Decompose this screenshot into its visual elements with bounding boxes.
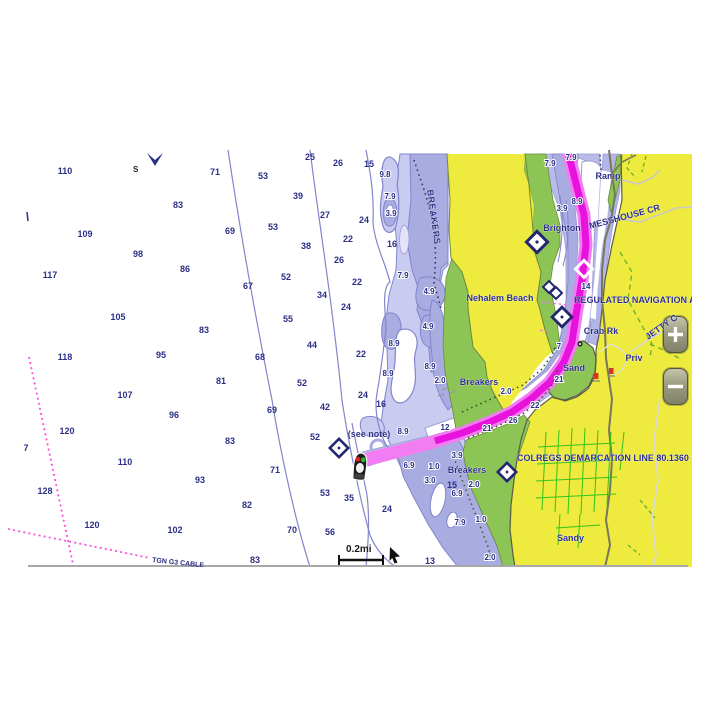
svg-text:8.9: 8.9 — [388, 339, 400, 348]
svg-text:86: 86 — [180, 264, 190, 274]
svg-text:24: 24 — [341, 302, 351, 312]
svg-text:7.9: 7.9 — [397, 271, 409, 280]
svg-text:26: 26 — [509, 416, 518, 425]
svg-text:83: 83 — [225, 436, 235, 446]
svg-text:7: 7 — [23, 443, 28, 453]
svg-text:24: 24 — [382, 504, 392, 514]
svg-text:Sand: Sand — [563, 363, 585, 373]
svg-text:38: 38 — [301, 241, 311, 251]
svg-text:7.9: 7.9 — [544, 159, 556, 168]
svg-text:83: 83 — [250, 555, 260, 565]
svg-text:96: 96 — [169, 410, 179, 420]
svg-text:8.9: 8.9 — [397, 427, 409, 436]
svg-text:Ramp: Ramp — [595, 171, 621, 181]
svg-text:52: 52 — [297, 378, 307, 388]
svg-text:12: 12 — [441, 423, 450, 432]
svg-text:Breakers: Breakers — [460, 377, 499, 387]
svg-text:2.0: 2.0 — [500, 387, 512, 396]
svg-text:71: 71 — [210, 167, 220, 177]
svg-text:2.0: 2.0 — [468, 480, 480, 489]
svg-text:Sandy: Sandy — [557, 533, 584, 543]
svg-text:8.9: 8.9 — [571, 197, 583, 206]
svg-text:3.9: 3.9 — [385, 209, 397, 218]
svg-text:102: 102 — [167, 525, 182, 535]
svg-text:3.0: 3.0 — [424, 476, 436, 485]
svg-text:3.9: 3.9 — [556, 204, 568, 213]
svg-text:110: 110 — [58, 166, 73, 176]
svg-text:7: 7 — [557, 342, 562, 351]
svg-text:70: 70 — [287, 525, 297, 535]
svg-text:52: 52 — [310, 432, 320, 442]
svg-text:6.9: 6.9 — [451, 489, 463, 498]
svg-text:69: 69 — [225, 226, 235, 236]
svg-text:Priv: Priv — [625, 353, 642, 363]
svg-text:4.9: 4.9 — [422, 322, 434, 331]
svg-text:53: 53 — [268, 222, 278, 232]
svg-text:2.0: 2.0 — [484, 553, 496, 562]
svg-text:26: 26 — [334, 255, 344, 265]
svg-text:22: 22 — [343, 234, 353, 244]
svg-text:24: 24 — [358, 390, 368, 400]
svg-text:26: 26 — [333, 158, 343, 168]
svg-text:39: 39 — [293, 191, 303, 201]
svg-text:16: 16 — [387, 239, 397, 249]
svg-text:120: 120 — [59, 426, 74, 436]
svg-text:82: 82 — [242, 500, 252, 510]
svg-text:107: 107 — [117, 390, 132, 400]
svg-text:68: 68 — [255, 352, 265, 362]
svg-text:44: 44 — [307, 340, 317, 350]
svg-text:93: 93 — [195, 475, 205, 485]
svg-text:Breakers: Breakers — [448, 465, 487, 475]
svg-text:42: 42 — [320, 402, 330, 412]
svg-text:120: 120 — [84, 520, 99, 530]
svg-text:4.9: 4.9 — [423, 287, 435, 296]
svg-text:95: 95 — [156, 350, 166, 360]
svg-text:7.9: 7.9 — [454, 518, 466, 527]
svg-text:13: 13 — [425, 556, 435, 566]
svg-text:7.9: 7.9 — [384, 192, 396, 201]
svg-text:69: 69 — [267, 405, 277, 415]
svg-text:71: 71 — [270, 465, 280, 475]
svg-text:118: 118 — [58, 352, 73, 362]
svg-text:22: 22 — [531, 401, 540, 410]
svg-text:53: 53 — [320, 488, 330, 498]
svg-text:1.0: 1.0 — [475, 515, 487, 524]
svg-text:55: 55 — [283, 314, 293, 324]
svg-text:109: 109 — [77, 229, 92, 239]
svg-text:105: 105 — [110, 312, 125, 322]
svg-text:83: 83 — [173, 200, 183, 210]
svg-text:3.9: 3.9 — [451, 451, 463, 460]
svg-text:34: 34 — [317, 290, 327, 300]
svg-text:8.9: 8.9 — [424, 362, 436, 371]
svg-text:52: 52 — [281, 272, 291, 282]
svg-text:128: 128 — [37, 486, 52, 496]
svg-text:S: S — [133, 165, 139, 174]
svg-text:56: 56 — [325, 527, 335, 537]
svg-text:117: 117 — [43, 270, 58, 280]
svg-text:110: 110 — [118, 457, 133, 467]
svg-text:(see note): (see note) — [348, 429, 391, 439]
svg-text:83: 83 — [199, 325, 209, 335]
svg-text:Nehalem Beach: Nehalem Beach — [466, 293, 533, 303]
svg-text:24: 24 — [359, 215, 369, 225]
svg-text:98: 98 — [133, 249, 143, 259]
svg-text:81: 81 — [216, 376, 226, 386]
svg-text:6.9: 6.9 — [403, 461, 415, 470]
svg-text:Crab Rk: Crab Rk — [584, 326, 620, 336]
svg-text:8.9: 8.9 — [382, 369, 394, 378]
svg-text:22: 22 — [352, 277, 362, 287]
svg-text:25: 25 — [305, 152, 315, 162]
svg-text:53: 53 — [258, 171, 268, 181]
svg-text:21: 21 — [555, 375, 564, 384]
svg-text:2.0: 2.0 — [434, 376, 446, 385]
svg-text:27: 27 — [320, 210, 330, 220]
svg-text:14: 14 — [582, 282, 591, 291]
svg-text:35: 35 — [344, 493, 354, 503]
svg-text:9.8: 9.8 — [379, 170, 391, 179]
svg-text:21: 21 — [483, 424, 492, 433]
svg-text:COLREGS DEMARCATION LINE 80.13: COLREGS DEMARCATION LINE 80.1360 (see — [517, 453, 709, 463]
svg-text:15: 15 — [364, 159, 374, 169]
svg-text:Brighton: Brighton — [543, 223, 581, 233]
svg-text:1.0: 1.0 — [428, 462, 440, 471]
svg-text:7.9: 7.9 — [565, 153, 577, 162]
svg-text:22: 22 — [356, 349, 366, 359]
svg-text:0.2mi: 0.2mi — [346, 544, 372, 555]
svg-text:67: 67 — [243, 281, 253, 291]
svg-text:16: 16 — [376, 399, 386, 409]
